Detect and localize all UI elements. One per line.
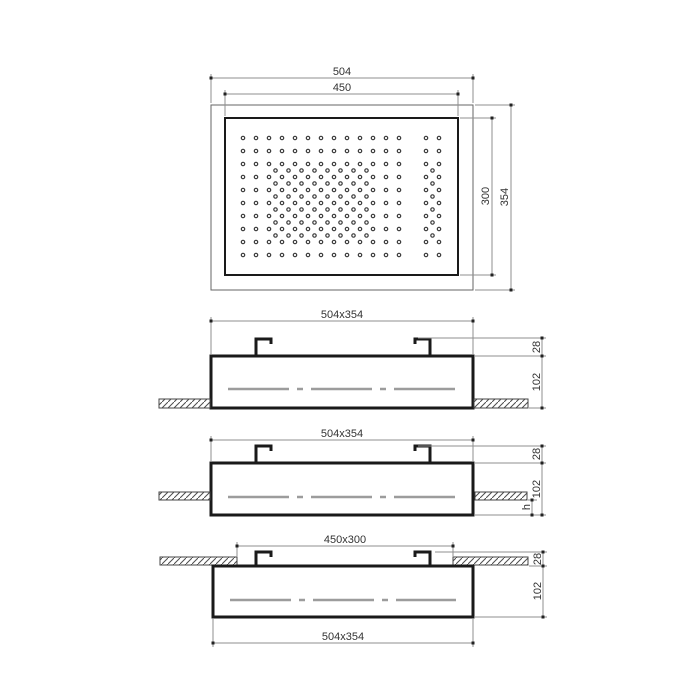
nozzle-dot <box>358 227 361 230</box>
nozzle-dot <box>267 162 270 165</box>
nozzle-dot <box>274 169 277 172</box>
nozzle-dot <box>280 162 283 165</box>
nozzle-dot <box>326 234 329 237</box>
nozzle-dot <box>254 201 257 204</box>
nozzle-dot <box>371 227 374 230</box>
nozzle-dot <box>424 201 427 204</box>
nozzle-dot <box>352 182 355 185</box>
nozzle-dot <box>313 182 316 185</box>
nozzle-dot <box>306 240 309 243</box>
nozzle-dot <box>280 149 283 152</box>
nozzle-dot <box>287 169 290 172</box>
nozzle-dot <box>313 208 316 211</box>
dimension-end-marker <box>541 407 544 410</box>
nozzle-dot <box>287 234 290 237</box>
nozzle-dot <box>267 188 270 191</box>
nozzle-dot <box>306 149 309 152</box>
nozzle-dot <box>293 175 296 178</box>
nozzle-dot <box>293 214 296 217</box>
nozzle-dot <box>300 234 303 237</box>
nozzle-dot <box>397 201 400 204</box>
dimension-end-marker <box>510 104 513 107</box>
nozzle-dot <box>358 253 361 256</box>
dim-label-recessed-clip: 28 <box>531 341 543 353</box>
nozzle-dot <box>397 149 400 152</box>
nozzle-dot <box>345 162 348 165</box>
nozzle-dot <box>371 136 374 139</box>
dim-label-recessed-size: 504x354 <box>321 309 363 321</box>
nozzle-dot <box>384 162 387 165</box>
nozzle-dot <box>306 214 309 217</box>
surface-body <box>213 566 473 617</box>
nozzle-dot <box>345 253 348 256</box>
nozzle-dot <box>287 221 290 224</box>
nozzle-dot <box>293 188 296 191</box>
drawing-page: 504 450 300 354 504x354 28 102 504x354 2… <box>0 0 700 700</box>
nozzle-dot <box>332 240 335 243</box>
nozzle-dot <box>431 234 434 237</box>
nozzle-dot <box>241 240 244 243</box>
dimension-end-marker <box>491 117 494 120</box>
nozzle-dot <box>319 162 322 165</box>
nozzle-dot <box>437 175 440 178</box>
nozzle-dot <box>384 188 387 191</box>
nozzle-dot <box>241 175 244 178</box>
dimension-end-marker <box>541 445 544 448</box>
nozzle-dot <box>339 208 342 211</box>
nozzle-dot <box>358 214 361 217</box>
dimension-end-marker <box>541 337 544 340</box>
dim-label-recessed-height: 102 <box>531 373 543 391</box>
nozzle-dot <box>358 240 361 243</box>
dimension-end-marker <box>541 355 544 358</box>
nozzle-dot <box>254 136 257 139</box>
mounting-clip-left <box>256 446 271 463</box>
nozzle-dot <box>267 175 270 178</box>
nozzle-dot <box>397 175 400 178</box>
nozzle-dot <box>437 188 440 191</box>
nozzle-dot <box>280 253 283 256</box>
nozzle-dot <box>365 169 368 172</box>
dimension-end-marker <box>541 514 544 517</box>
nozzle-dot <box>371 201 374 204</box>
nozzle-dot <box>365 182 368 185</box>
nozzle-dot <box>332 136 335 139</box>
nozzle-dot <box>371 175 374 178</box>
dim-label-width-inner: 450 <box>333 82 351 94</box>
mounting-clip-left <box>256 339 271 356</box>
nozzle-dot <box>431 221 434 224</box>
nozzle-dot <box>280 214 283 217</box>
nozzle-dot <box>358 175 361 178</box>
nozzle-dot <box>326 208 329 211</box>
nozzle-dot <box>384 201 387 204</box>
nozzle-dot <box>326 169 329 172</box>
nozzle-dot <box>345 136 348 139</box>
nozzle-dot <box>326 221 329 224</box>
nozzle-dot <box>319 214 322 217</box>
nozzle-dot <box>241 227 244 230</box>
nozzle-dot <box>300 195 303 198</box>
nozzle-dot <box>397 162 400 165</box>
nozzle-dot <box>397 188 400 191</box>
ceiling-section <box>159 399 210 408</box>
nozzle-dot <box>306 188 309 191</box>
nozzle-dot <box>274 208 277 211</box>
nozzle-dot <box>254 240 257 243</box>
nozzle-dot <box>326 182 329 185</box>
nozzle-dot <box>424 149 427 152</box>
dimension-end-marker <box>210 77 213 80</box>
nozzle-dot <box>300 208 303 211</box>
nozzle-dot <box>345 227 348 230</box>
nozzle-dot <box>254 188 257 191</box>
nozzle-dot <box>358 162 361 165</box>
dim-label-surface-size: 504x354 <box>322 631 364 643</box>
nozzle-dot <box>345 175 348 178</box>
nozzle-dot <box>384 227 387 230</box>
nozzle-dot <box>352 169 355 172</box>
nozzle-dot <box>313 234 316 237</box>
nozzle-dot <box>358 136 361 139</box>
nozzle-dot <box>339 195 342 198</box>
nozzle-dot <box>306 136 309 139</box>
nozzle-dot <box>424 253 427 256</box>
nozzle-dot <box>254 253 257 256</box>
dimension-end-marker <box>510 289 513 292</box>
nozzle-dot <box>437 149 440 152</box>
nozzle-dot <box>274 234 277 237</box>
dimension-end-marker <box>491 274 494 277</box>
nozzle-dot <box>384 149 387 152</box>
ceiling-section <box>160 557 237 565</box>
dimension-end-marker <box>531 514 534 517</box>
nozzle-dot <box>431 208 434 211</box>
nozzle-dot <box>397 253 400 256</box>
dimension-end-marker <box>472 439 475 442</box>
dimension-end-marker <box>212 642 215 645</box>
nozzle-dot <box>319 188 322 191</box>
dimension-end-marker <box>452 545 455 548</box>
nozzle-dot <box>241 214 244 217</box>
dimension-end-marker <box>224 93 227 96</box>
nozzle-dot <box>280 188 283 191</box>
nozzle-dot <box>293 253 296 256</box>
nozzle-dot <box>280 175 283 178</box>
nozzle-dot <box>431 169 434 172</box>
nozzle-dot <box>365 195 368 198</box>
technical-drawing-shower-head: 504 450 300 354 504x354 28 102 504x354 2… <box>0 0 700 700</box>
nozzle-dot <box>339 234 342 237</box>
nozzle-dot <box>424 188 427 191</box>
nozzle-dot <box>339 221 342 224</box>
nozzle-dot <box>241 136 244 139</box>
dim-label-surface-opening: 450x300 <box>324 534 366 546</box>
nozzle-dot <box>332 162 335 165</box>
nozzle-dot <box>241 201 244 204</box>
nozzle-dot <box>280 136 283 139</box>
nozzle-dot <box>313 195 316 198</box>
nozzle-dot <box>397 240 400 243</box>
nozzle-dot <box>345 188 348 191</box>
dim-label-semi-clip: 28 <box>531 448 543 460</box>
nozzle-dot <box>293 201 296 204</box>
ceiling-section <box>453 557 528 565</box>
nozzle-dot <box>254 162 257 165</box>
drawing-geometry <box>159 74 547 647</box>
nozzle-dot <box>254 149 257 152</box>
nozzle-dot <box>371 240 374 243</box>
dimension-end-marker <box>542 616 545 619</box>
nozzle-dot <box>424 214 427 217</box>
nozzle-dot <box>287 208 290 211</box>
nozzle-dot <box>352 234 355 237</box>
nozzle-dot <box>280 227 283 230</box>
nozzle-dot <box>241 162 244 165</box>
nozzle-dot <box>339 182 342 185</box>
nozzle-dot <box>332 149 335 152</box>
nozzle-dot <box>339 169 342 172</box>
nozzle-dot <box>332 253 335 256</box>
nozzle-dot <box>287 182 290 185</box>
nozzle-dot <box>365 208 368 211</box>
nozzle-dot <box>306 162 309 165</box>
ceiling-section <box>474 399 528 408</box>
nozzle-dot <box>254 175 257 178</box>
nozzle-dot <box>267 136 270 139</box>
recessed-body <box>211 356 473 408</box>
nozzle-dot <box>300 169 303 172</box>
nozzle-dot <box>313 221 316 224</box>
nozzle-dot <box>332 201 335 204</box>
nozzle-dot <box>267 214 270 217</box>
nozzle-dot <box>254 227 257 230</box>
dimension-end-marker <box>210 320 213 323</box>
dimension-end-marker <box>236 545 239 548</box>
nozzle-dot <box>274 221 277 224</box>
semi-recessed-body <box>211 463 473 515</box>
nozzle-dot <box>384 253 387 256</box>
nozzle-dot <box>397 227 400 230</box>
nozzle-dot <box>332 227 335 230</box>
nozzle-dot <box>384 214 387 217</box>
nozzle-dot <box>365 234 368 237</box>
nozzle-dot <box>293 149 296 152</box>
nozzle-dot <box>293 162 296 165</box>
nozzle-dot <box>365 221 368 224</box>
nozzle-dot <box>437 201 440 204</box>
nozzle-dot <box>293 227 296 230</box>
nozzle-dot <box>397 136 400 139</box>
nozzle-dot <box>332 188 335 191</box>
mounting-clip-right <box>415 446 430 463</box>
dimension-end-marker <box>541 462 544 465</box>
nozzle-dot <box>267 201 270 204</box>
dim-label-width-outer: 504 <box>333 66 351 78</box>
nozzle-dot <box>332 214 335 217</box>
nozzle-dot <box>326 195 329 198</box>
nozzle-dot <box>371 188 374 191</box>
nozzle-dot <box>319 227 322 230</box>
dimension-end-marker <box>472 320 475 323</box>
nozzle-dot <box>424 136 427 139</box>
dimension-end-marker <box>472 642 475 645</box>
dimension-end-marker <box>457 93 460 96</box>
nozzle-dot <box>437 214 440 217</box>
nozzle-dot <box>437 136 440 139</box>
nozzle-dot <box>371 253 374 256</box>
nozzle-dot <box>254 214 257 217</box>
nozzle-dot <box>431 182 434 185</box>
nozzle-dot <box>313 169 316 172</box>
nozzle-dot <box>371 149 374 152</box>
nozzle-dot <box>424 175 427 178</box>
nozzle-dot <box>397 214 400 217</box>
nozzle-dot <box>267 240 270 243</box>
nozzle-dot <box>241 188 244 191</box>
nozzle-dot <box>437 240 440 243</box>
nozzle-dot <box>384 175 387 178</box>
nozzle-dot <box>424 240 427 243</box>
nozzle-dot <box>332 175 335 178</box>
nozzle-dot <box>319 149 322 152</box>
dim-label-height-inner: 300 <box>480 187 492 205</box>
nozzle-dot <box>274 182 277 185</box>
nozzle-dot <box>319 253 322 256</box>
nozzle-dot <box>306 253 309 256</box>
nozzle-dot <box>267 253 270 256</box>
nozzle-dot <box>437 227 440 230</box>
mounting-clip-left <box>256 552 271 566</box>
dim-label-semi-size: 504x354 <box>321 428 363 440</box>
nozzle-dot <box>293 240 296 243</box>
nozzle-dot <box>384 136 387 139</box>
nozzle-dot <box>280 240 283 243</box>
nozzle-dot <box>358 188 361 191</box>
mounting-clip-right <box>415 339 430 356</box>
dim-label-height-outer: 354 <box>499 188 511 206</box>
nozzle-dot <box>437 253 440 256</box>
ceiling-section <box>159 492 210 500</box>
dim-label-semi-height: 102 <box>531 480 543 498</box>
ceiling-section <box>475 492 527 500</box>
nozzle-dot <box>319 136 322 139</box>
dimension-end-marker <box>210 439 213 442</box>
nozzle-dot <box>371 214 374 217</box>
nozzle-dot <box>345 149 348 152</box>
dim-label-surface-height: 102 <box>532 582 544 600</box>
nozzle-dot <box>280 201 283 204</box>
nozzle-dot <box>384 240 387 243</box>
nozzle-dot <box>358 149 361 152</box>
nozzle-dot <box>424 227 427 230</box>
nozzle-dot <box>306 175 309 178</box>
nozzle-dot <box>345 201 348 204</box>
nozzle-dot <box>431 195 434 198</box>
nozzle-dot <box>306 201 309 204</box>
nozzle-dot <box>293 136 296 139</box>
nozzle-dot <box>345 240 348 243</box>
nozzle-dot <box>352 221 355 224</box>
mounting-clip-right <box>415 552 430 566</box>
nozzle-dot <box>267 227 270 230</box>
nozzle-dot <box>424 162 427 165</box>
dimension-end-marker <box>472 77 475 80</box>
nozzle-dot <box>287 195 290 198</box>
dim-label-semi-protrusion: h <box>521 504 533 510</box>
nozzle-dot <box>241 149 244 152</box>
nozzle-dot <box>267 149 270 152</box>
nozzle-dot <box>319 175 322 178</box>
nozzle-dot <box>300 182 303 185</box>
nozzle-dot <box>358 201 361 204</box>
nozzle-dot <box>300 221 303 224</box>
nozzle-dot <box>306 227 309 230</box>
nozzle-dot <box>241 253 244 256</box>
dim-label-surface-clip: 28 <box>532 553 544 565</box>
nozzle-dot <box>274 195 277 198</box>
nozzle-dot <box>319 240 322 243</box>
nozzle-dot <box>371 162 374 165</box>
nozzle-dot <box>319 201 322 204</box>
nozzle-dot <box>345 214 348 217</box>
nozzle-dot <box>437 162 440 165</box>
nozzle-dot <box>352 208 355 211</box>
nozzle-dot <box>352 195 355 198</box>
